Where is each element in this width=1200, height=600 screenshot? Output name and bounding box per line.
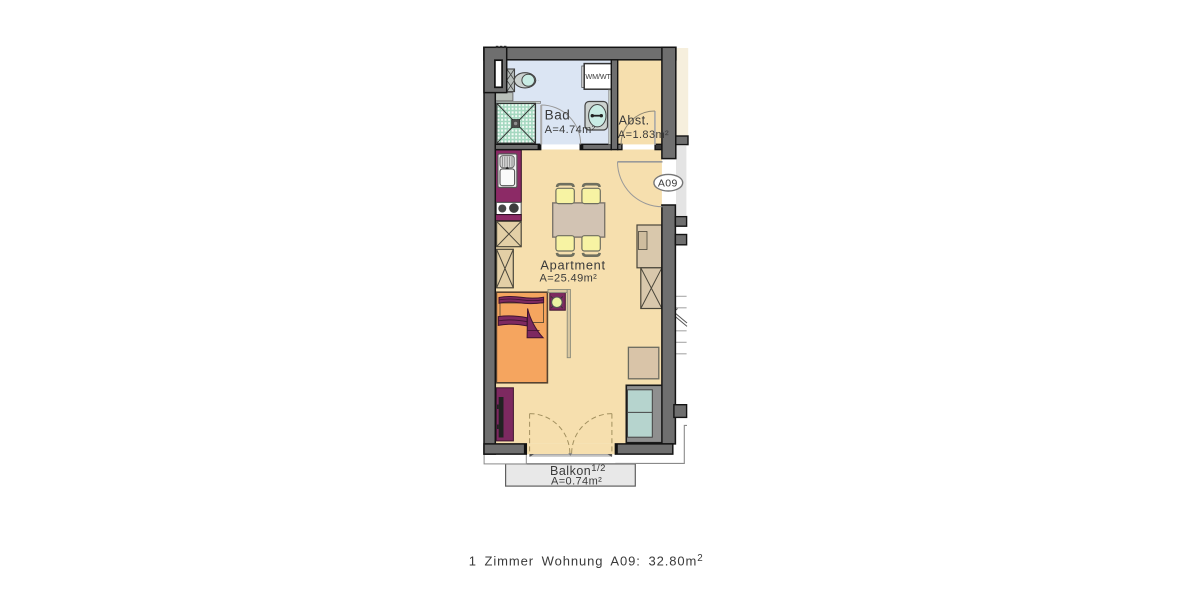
svg-text:A=0.74m²: A=0.74m² xyxy=(551,475,602,487)
svg-text:Apartment: Apartment xyxy=(540,257,605,272)
svg-text:A=1.83m²: A=1.83m² xyxy=(618,129,669,141)
svg-text:WM/WT: WM/WT xyxy=(585,72,611,81)
svg-text:Bad: Bad xyxy=(545,107,571,122)
svg-text:A09: A09 xyxy=(658,178,678,190)
svg-text:A=25.49m²: A=25.49m² xyxy=(540,273,598,285)
svg-text:Abst.: Abst. xyxy=(619,114,650,128)
svg-text:A=4.74m²: A=4.74m² xyxy=(545,124,596,136)
svg-text:1 Zimmer Wohnung A09: 32.80m2: 1 Zimmer Wohnung A09: 32.80m2 xyxy=(469,553,704,568)
